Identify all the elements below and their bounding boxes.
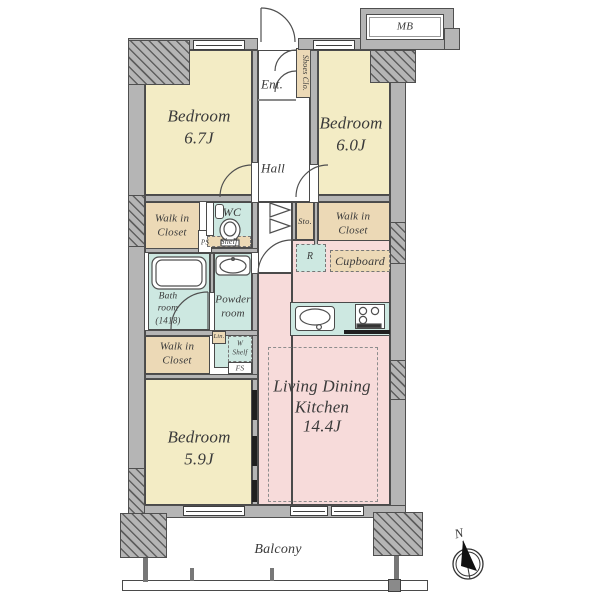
wall-hatch-right-b <box>390 360 406 400</box>
wic-top-label-line1: Walk in <box>155 214 189 225</box>
ldk-label-line2: Kitchen <box>295 399 349 416</box>
wc-cabinet <box>206 202 214 236</box>
entrance-door-arc <box>261 8 295 42</box>
entrance-step-line <box>258 99 296 101</box>
bathroom-label-line1: Bath <box>159 292 178 302</box>
wall-right <box>390 50 406 515</box>
railing-corner-block <box>388 579 401 592</box>
wall-mid-left <box>145 195 252 202</box>
linen-label: Lin. <box>213 334 224 341</box>
wall-mid-right <box>318 195 390 202</box>
wall-hall-left-a <box>252 202 258 253</box>
railing-post-2 <box>190 568 194 581</box>
compass-inner-ring <box>456 552 480 576</box>
compass-outer-ring <box>453 549 483 579</box>
bedroom60-size-label: 6.0J <box>336 137 366 154</box>
floor-plan: Bedroom 6.7J Bedroom 6.0J Bedroom 5.9J L… <box>0 0 600 600</box>
wall-hall-left-upper <box>252 50 258 163</box>
bedroom67-size-label: 6.7J <box>184 130 214 147</box>
wall-left <box>128 40 145 517</box>
balcony-wall-left <box>120 513 167 558</box>
wall-hatch-left-bottom <box>128 468 145 517</box>
window-top-bedroom60 <box>313 40 355 50</box>
entrance-label: Ent. <box>261 78 283 91</box>
fire-space-label: FS <box>236 364 245 372</box>
stove-unit <box>355 304 385 329</box>
wall-hall-right-upper <box>310 50 318 165</box>
wc-label: WC <box>223 206 241 218</box>
railing-post-3 <box>270 568 274 581</box>
balcony-wall-right <box>373 512 423 556</box>
refrigerator-label: R <box>307 252 313 262</box>
meter-box-label: MB <box>397 22 413 33</box>
sliding-door-mark-3 <box>252 480 257 502</box>
bedroom59-name-label: Bedroom <box>167 429 230 446</box>
window-bottom-ldk-left <box>290 506 328 516</box>
bedroom67-name-label: Bedroom <box>167 108 230 125</box>
compass-icon <box>453 540 483 579</box>
bedroom59-size-label: 5.9J <box>184 451 214 468</box>
cupboard-label: Cupboard <box>335 255 385 267</box>
wic-right-label-line1: Walk in <box>336 212 370 223</box>
railing-post-1 <box>143 558 148 582</box>
wall-bottom <box>128 505 406 518</box>
compass-needle <box>461 540 477 571</box>
wall-hatch-right-a <box>390 222 406 264</box>
wic-bottom-label-line1: Walk in <box>160 342 194 353</box>
wall-powder-left <box>210 253 214 293</box>
balcony-railing <box>122 580 428 591</box>
wall-meter-box-tab <box>444 28 460 50</box>
storage-label: Sto. <box>298 217 312 226</box>
wall-hall-right-lower <box>292 202 296 240</box>
kitchen-sink-unit <box>295 306 335 331</box>
washer-shelf-label-line1: W <box>237 341 243 348</box>
compass-north-label: N <box>453 526 465 541</box>
wic-bottom-label-line2: Closet <box>162 356 191 367</box>
wall-hatch-left-mid <box>128 195 145 247</box>
counter-edge <box>344 330 390 334</box>
wall-wet-bottom <box>145 374 258 379</box>
room-hall-lower <box>258 202 292 273</box>
bathroom-label-line2: room <box>158 304 179 314</box>
washer-shelf-label-line2: Shelf <box>233 350 248 357</box>
powder-room-label-line1: Powder <box>215 295 250 306</box>
powder-room-label-line2: room <box>221 309 245 320</box>
wic-top-label-line2: Closet <box>157 228 186 239</box>
balcony-label: Balcony <box>254 543 301 557</box>
wall-hatch-top-left-corner <box>128 40 190 85</box>
window-bottom-ldk-right <box>331 506 364 516</box>
pipe-space-label: PS <box>201 240 209 247</box>
window-top-bedroom67 <box>193 40 245 50</box>
ldk-label-line1: Living Dining <box>273 378 371 395</box>
wall-hall-left-b <box>252 273 258 377</box>
wall-hatch-under-meter-box <box>370 50 416 83</box>
bedroom60-name-label: Bedroom <box>319 115 382 132</box>
wall-storage-right <box>314 202 318 248</box>
sliding-door-mark-2 <box>252 436 257 466</box>
sliding-door-mark-1 <box>252 390 257 420</box>
wic-right-label-line2: Closet <box>338 226 367 237</box>
ldk-size-label: 14.4J <box>303 418 341 435</box>
bathroom-label-line3: (1418) <box>155 317 180 326</box>
wc-shelf-label: Shelf <box>221 238 238 246</box>
hall-label: Hall <box>261 162 285 175</box>
window-bottom-bedroom59 <box>183 506 245 516</box>
shoes-closet-label: Shoes Clo. <box>301 55 309 91</box>
compass-needle-line <box>463 541 470 579</box>
